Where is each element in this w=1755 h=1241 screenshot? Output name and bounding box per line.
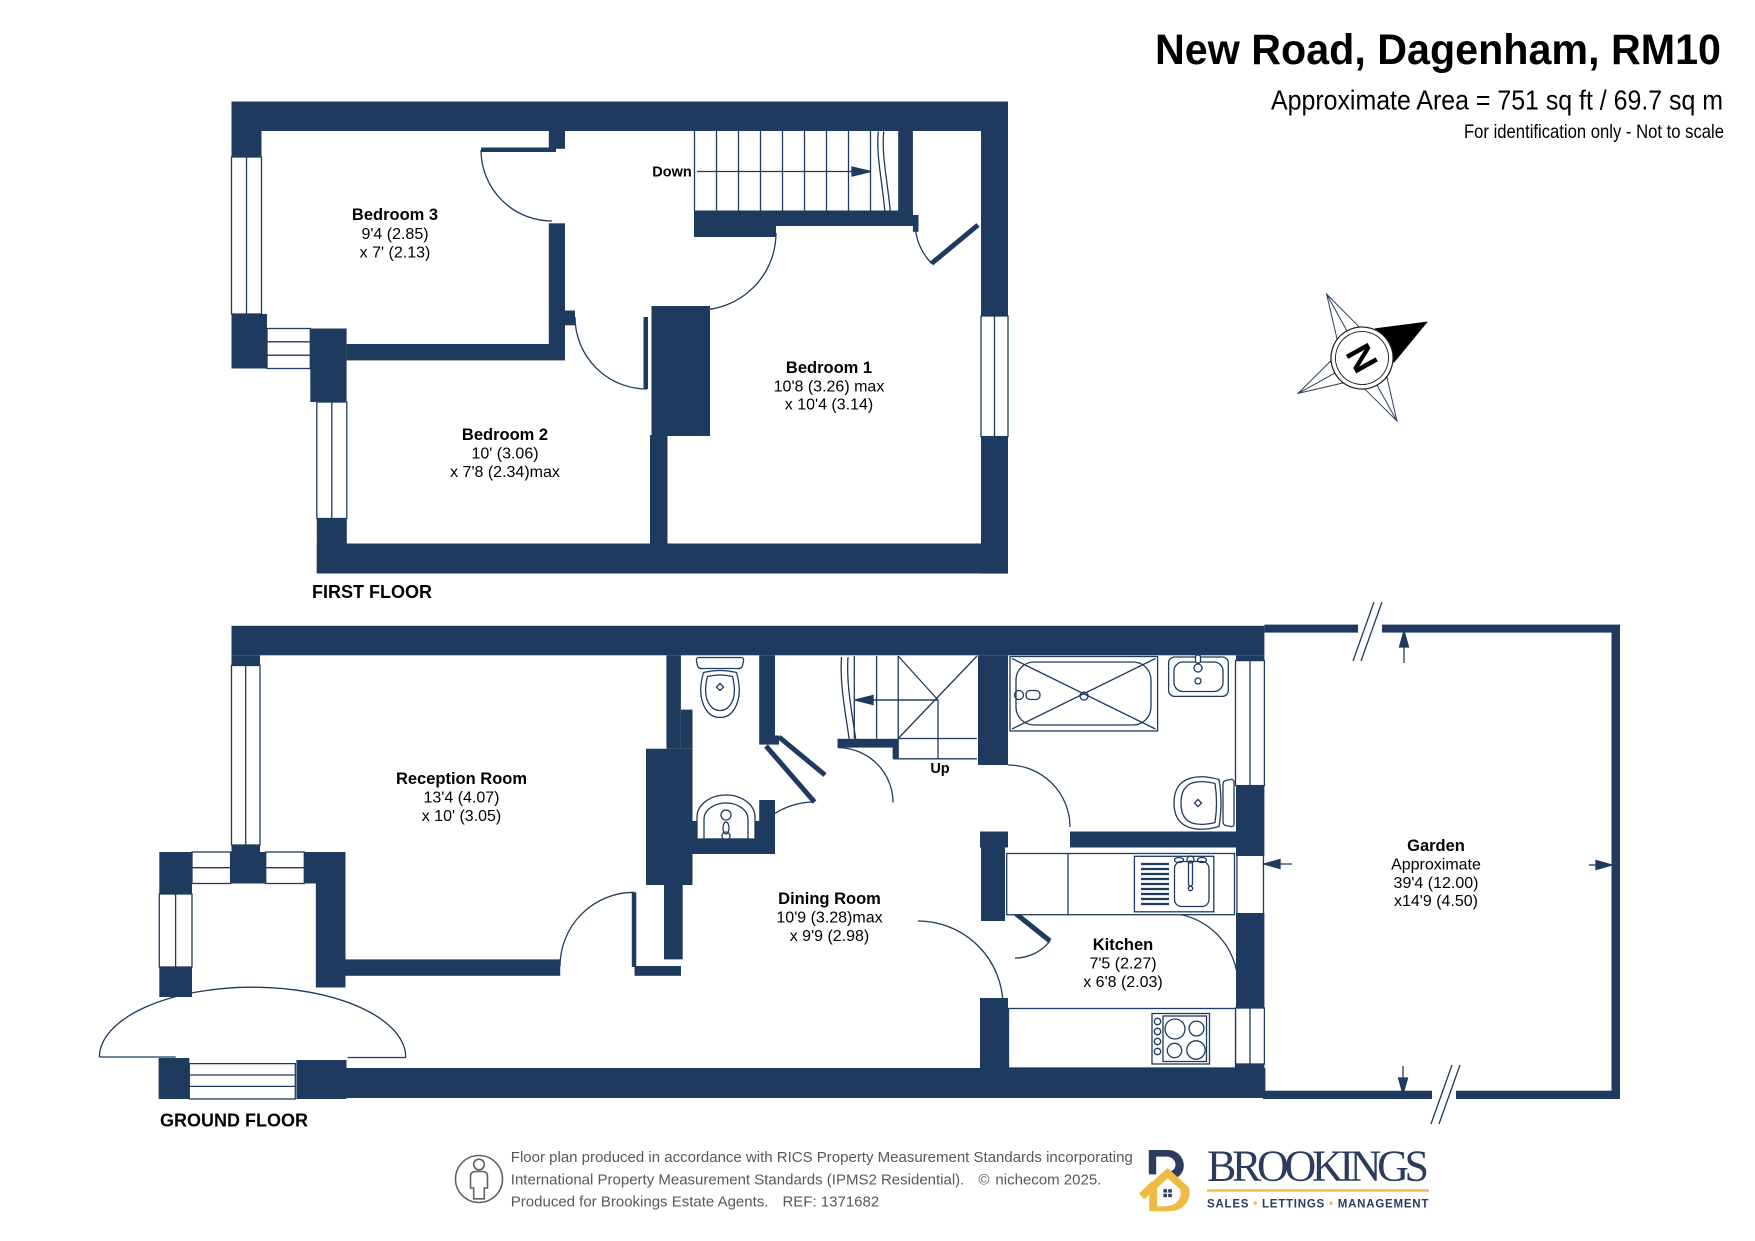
svg-text:Dining Room: Dining Room <box>778 890 881 908</box>
svg-text:Approximate: Approximate <box>1391 857 1481 874</box>
svg-text:x 9'9 (2.98): x 9'9 (2.98) <box>790 928 870 945</box>
svg-text:SALES • LETTINGS • MANAGEMENT: SALES • LETTINGS • MANAGEMENT <box>1207 1199 1430 1211</box>
svg-text:Kitchen: Kitchen <box>1093 936 1154 954</box>
svg-text:9'4 (2.85): 9'4 (2.85) <box>361 226 428 243</box>
svg-text:FIRST FLOOR: FIRST FLOOR <box>312 582 432 602</box>
svg-text:Bedroom 1: Bedroom 1 <box>786 359 872 377</box>
svg-text:BROOKINGS: BROOKINGS <box>1207 1141 1429 1190</box>
svg-text:10'8 (3.26) max: 10'8 (3.26) max <box>774 379 885 396</box>
svg-text:x 7' (2.13): x 7' (2.13) <box>360 245 431 262</box>
svg-text:Reception Room: Reception Room <box>396 770 527 788</box>
svg-text:x 10'4 (3.14): x 10'4 (3.14) <box>785 397 873 414</box>
svg-text:Bedroom 2: Bedroom 2 <box>462 426 548 444</box>
svg-text:x 7'8 (2.34)max: x 7'8 (2.34)max <box>450 464 560 481</box>
svg-text:Floor plan produced in accorda: Floor plan produced in accordance with R… <box>511 1149 1133 1166</box>
svg-text:Approximate Area = 751 sq ft /: Approximate Area = 751 sq ft / 69.7 sq m <box>1271 85 1723 116</box>
svg-text:10'9 (3.28)max: 10'9 (3.28)max <box>776 910 882 927</box>
svg-text:39'4 (12.00): 39'4 (12.00) <box>1394 875 1479 892</box>
svg-text:For identification only - Not: For identification only - Not to scale <box>1464 121 1724 143</box>
svg-text:Produced for Brookings Estate: Produced for Brookings Estate Agents.REF… <box>511 1194 879 1211</box>
svg-text:7'5 (2.27): 7'5 (2.27) <box>1089 956 1156 973</box>
svg-text:10' (3.06): 10' (3.06) <box>471 446 538 463</box>
svg-text:Bedroom 3: Bedroom 3 <box>352 206 438 224</box>
svg-text:x14'9 (4.50): x14'9 (4.50) <box>1394 893 1478 910</box>
svg-text:x 6'8 (2.03): x 6'8 (2.03) <box>1083 974 1163 991</box>
svg-text:Down: Down <box>652 165 691 181</box>
svg-text:Up: Up <box>930 761 949 777</box>
svg-text:New Road, Dagenham, RM10: New Road, Dagenham, RM10 <box>1155 26 1721 74</box>
svg-text:Garden: Garden <box>1407 837 1465 855</box>
svg-text:GROUND FLOOR: GROUND FLOOR <box>160 1111 308 1131</box>
svg-text:x 10' (3.05): x 10' (3.05) <box>422 808 502 825</box>
svg-text:13'4 (4.07): 13'4 (4.07) <box>424 790 500 807</box>
svg-text:International Property Measure: International Property Measurement Stand… <box>511 1172 1102 1189</box>
